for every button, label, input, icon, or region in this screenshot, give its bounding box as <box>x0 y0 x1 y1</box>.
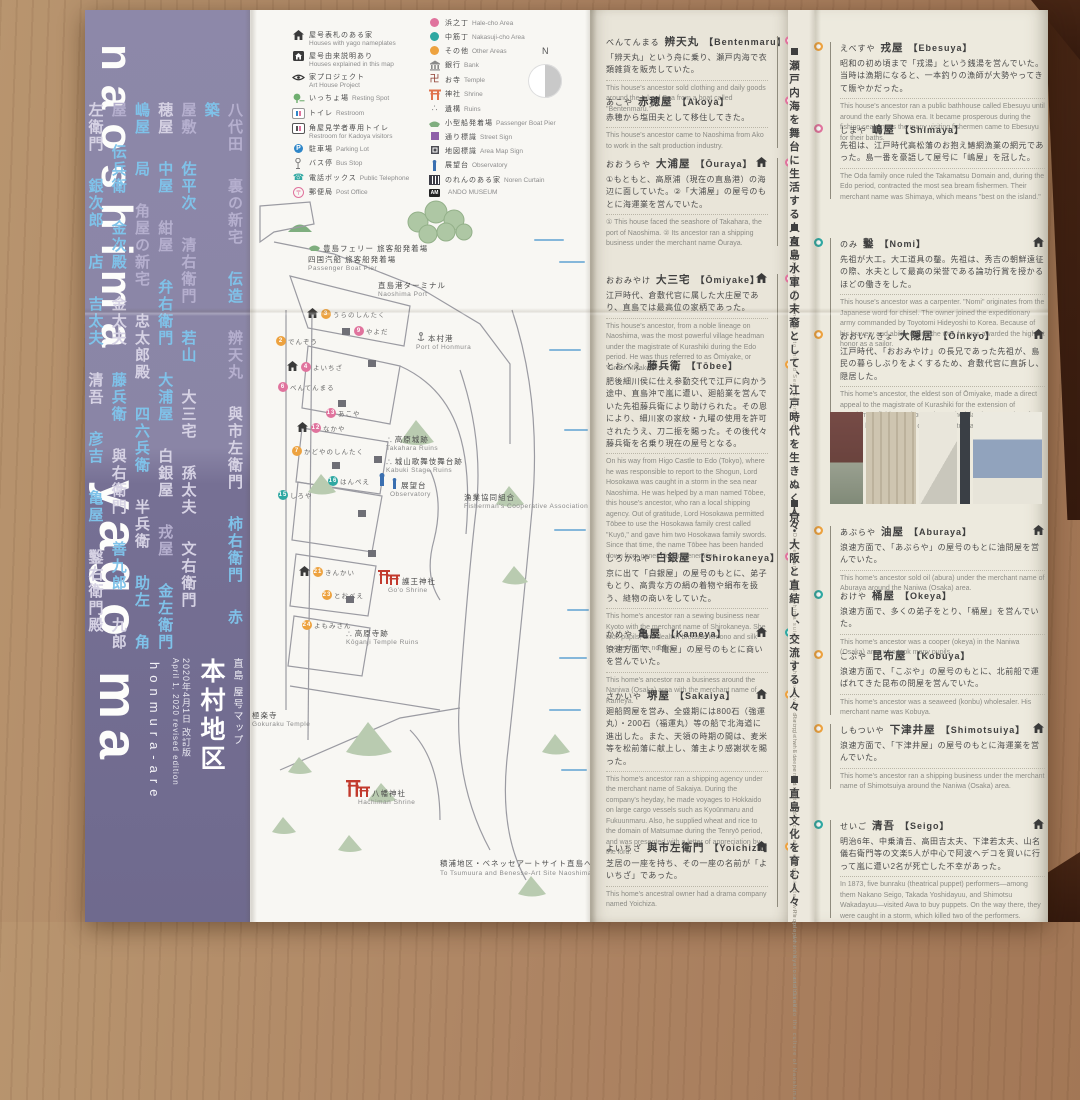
area-dot-teal-icon <box>430 32 439 41</box>
yago-name: 藤兵衛 <box>110 372 127 423</box>
legend-label-jp: 中筋丁 <box>445 34 469 41</box>
legend-label-en: Restroom <box>336 110 364 117</box>
yago-name: 柿右衛門 <box>226 516 243 584</box>
item-kanji: 亀屋 <box>638 628 661 640</box>
house-box-icon <box>292 51 305 62</box>
yago-name: 佐平次 <box>180 161 197 212</box>
legend-label-jp: お寺 <box>445 77 461 84</box>
house-icon <box>1032 723 1045 734</box>
item-rule <box>830 526 831 591</box>
item-kanji: 藤兵衛 <box>647 360 682 372</box>
yago-name: 金次殿 <box>110 220 127 271</box>
legend-label-en: Bank <box>464 62 479 69</box>
legend-row: 展望台Observatory <box>428 160 558 171</box>
yago-item-seigo: せいご清吾【Seigo】 明治6年、中乗清吾、高田吉太夫、下津若太夫、山名儀右衛… <box>830 818 1045 922</box>
parking-icon: P <box>294 144 303 153</box>
yago-name: 文右衛門 <box>180 541 197 609</box>
place-name-jp2: 四国汽船 旅客船発着場 <box>308 254 428 265</box>
yago-name-column: 屋 伝兵衛 金次殿 金太夫 藤兵衛 與右衛門 善九郎 九郎 <box>107 98 130 658</box>
place-name-jp: 豊島フェリー 旅客船発着場 <box>323 244 428 253</box>
group-header-4: 直島文化を育む人々People who have contributed to … <box>785 776 803 1100</box>
legend-label-jp: 浜之丁 <box>445 20 469 27</box>
item-description-jp: 昭和の初め頃まで「戎湯」という銭湯を営んでいた。当時は漁期になると、一本釣りの漁… <box>840 58 1045 95</box>
yago-name: 吉太夫 <box>87 296 104 347</box>
place-name-en: Takahara Ruins <box>386 445 438 452</box>
house-number-badge: 23 <box>322 590 332 600</box>
yago-item-aburaya: あぶらや油屋【Aburaya】 浪速方面で、「あぶらや」の屋号のもとに油問屋を営… <box>830 524 1045 595</box>
legend-row: 通り標識Street Sign <box>428 132 558 142</box>
yago-name: 築 <box>203 102 220 119</box>
yago-name: 角 <box>133 634 150 651</box>
yago-name: 鑿右衛門殿 <box>87 549 104 634</box>
legend-label-en: Houses explained in this map <box>309 61 394 68</box>
legend-label-jp: 角屋見学者専用トイレ <box>309 125 389 132</box>
item-kana: あぶらや <box>840 528 876 537</box>
item-description-jp: 京に出て「白銀屋」の屋号のもとに、弟子もとり、高貴な方の絹の着物や絹布を扱う、縫… <box>606 568 768 605</box>
item-kanji: 大隠居 <box>899 330 934 342</box>
item-description-jp: 江戸時代、「おおみやけ」の長兄であった先祖が、島民の暮らしぶりをよくするため、倉… <box>840 346 1045 383</box>
place-name-en: Kabuki Stage Ruins <box>386 467 463 474</box>
item-kana: おおみやけ <box>606 276 651 285</box>
item-rule <box>830 124 831 199</box>
legend-label-jp: 地図標識 <box>445 148 477 155</box>
item-kanji: 白銀屋 <box>656 552 691 564</box>
item-header: あこや赤穂屋【Akoya】 <box>606 94 768 109</box>
legend-label-en: Shrine <box>464 91 483 98</box>
yago-name-column: 穂屋 中屋 紺屋 弁右衛門 大浦屋 白銀屋 戎屋 金左衛門 <box>153 98 176 658</box>
legend-label-en: Temple <box>464 77 485 84</box>
noren-photo-strip <box>830 412 1042 504</box>
house-icon <box>292 30 305 41</box>
revision-date-en: April 1, 2020 revised edition <box>171 658 180 908</box>
item-description-en: In 1873, five bunraku (theatrical puppet… <box>840 876 1045 922</box>
yago-name: 九郎 <box>110 617 127 651</box>
legend-row: 〒 郵便局Post Office <box>292 187 422 198</box>
yago-item-shimotsuiya: しもついや下津井屋【Shimotsuiya】 浪速方面で、「下津井屋」の屋号のも… <box>830 722 1045 793</box>
item-kanji: 大三宅 <box>656 274 691 286</box>
legend-label-jp: バス停 <box>309 160 333 167</box>
legend-row: 中筋丁Nakasuji-cho Area <box>428 32 558 42</box>
place-name-jp: 展望台 <box>401 481 427 490</box>
item-kanji: 堺屋 <box>647 690 670 702</box>
legend-row: トイレRestroom <box>292 108 422 119</box>
map-house-label: 21きんかい <box>298 566 355 577</box>
legend-label-jp: のれんのある家 <box>445 177 501 184</box>
item-romaji: 【Ōuraya】 <box>696 159 753 169</box>
yago-name: 辨天丸 <box>226 330 243 381</box>
legend-label-jp: 屋号表札のある家 <box>309 32 373 39</box>
map-house-label: 7かどやのしんたく <box>292 446 364 456</box>
item-description-jp: 浪速方面で、多くの弟子をとり、「桶屋」を営んでいた。 <box>840 606 1045 631</box>
legend-label-jp: 遺構 <box>445 106 461 113</box>
legend-row: のれんのある家Noren Curtain <box>428 175 558 185</box>
item-rule <box>777 96 778 148</box>
compass-north-label: N <box>542 46 549 56</box>
anchor-icon <box>416 332 426 342</box>
item-romaji: 【Ōmiyake】 <box>696 275 761 285</box>
item-marker-teal <box>814 590 823 599</box>
observatory-icon <box>390 478 399 489</box>
legend-label-en: Ruins <box>464 106 481 113</box>
item-description-jp: 先祖が大工。大工道具の鑿。先祖は、秀吉の朝鮮遠征の際、水夫として最高の栄誉である… <box>840 254 1045 291</box>
legend-label-jp: その他 <box>445 48 469 55</box>
legend-label-en: Hale-cho Area <box>472 20 513 27</box>
place-name-jp: 本村港 <box>428 334 454 343</box>
item-romaji: 【Okeya】 <box>900 591 952 601</box>
legend-row: いっちょ場Resting Spot <box>292 93 422 104</box>
group-title-jp: 京・大阪と直結し、交流する人々 <box>788 500 800 715</box>
yago-name: 屋敷 <box>180 102 197 136</box>
yago-name: 店 <box>87 254 104 271</box>
yago-name: 助左 <box>133 575 150 609</box>
post-office-icon: 〒 <box>293 187 304 198</box>
map-house-label: 16はんぺえ <box>328 476 370 486</box>
section-square-icon <box>791 776 798 783</box>
item-description-en: The Oda family once ruled the Takamatsu … <box>840 168 1045 204</box>
item-marker-orange <box>814 650 823 659</box>
area-dot-pink-icon <box>430 18 439 27</box>
boat-icon <box>308 242 321 252</box>
yago-name: 八代田 <box>226 102 243 153</box>
item-romaji: 【Akoya】 <box>678 97 730 107</box>
yago-name: 清右衛門 <box>180 237 197 305</box>
map-house-label: 13あこや <box>326 408 361 418</box>
noren-photo-2 <box>866 412 916 504</box>
torii-icon <box>358 786 370 797</box>
yago-item-tōbee: とおべえ藤兵衛【Tōbee】 肥後細川侯に仕え参勤交代で江戸に向かう途中、直島沖… <box>606 358 778 562</box>
item-header: しろかねや白銀屋【Shirokaneya】 <box>606 550 768 565</box>
house-number-badge: 3 <box>321 309 331 319</box>
legend-row: その他Other Areas <box>428 46 558 56</box>
ruins-icon: ∴ <box>432 104 438 113</box>
item-kana: こぶや <box>840 652 867 661</box>
item-header: おおみやけ大三宅【Ōmiyake】 <box>606 272 768 287</box>
yago-name-column: 八代田 裏の新宅 伝造 辨天丸 與市左衛門 柿右衛門 赤 築 <box>200 98 247 658</box>
legend-label-en: Parking Lot <box>336 146 369 153</box>
yago-name: 彦吉 <box>87 431 104 465</box>
map-house-label: 9やよだ <box>354 326 389 336</box>
yago-name: 赤 <box>226 609 243 626</box>
map-house-label: 6べんてんまる <box>278 382 335 392</box>
legend-label-jp: トイレ <box>309 110 333 117</box>
house-name: なかや <box>323 423 346 433</box>
house-icon <box>1032 819 1045 830</box>
house-icon <box>296 422 309 433</box>
yago-name: 伝造 <box>226 271 243 305</box>
item-description-jp: 浪速方面で、「あぶらや」の屋号のもとに油問屋を営んでいた。 <box>840 542 1045 567</box>
legend-label-en: Area Map Sign <box>480 148 523 155</box>
folded-map-paper: naoshima yago ma 八代田 裏の新宅 伝造 辨天丸 與市左衛門 柿… <box>85 10 1048 922</box>
house-icon <box>298 566 311 577</box>
item-header: よいちざ與市左衛門【Yoichiza】 <box>606 840 768 855</box>
legend-label-en: Houses with yago nameplates <box>309 40 396 47</box>
item-kana: せいご <box>840 822 867 831</box>
map-house-label: 23とおべえ <box>322 590 364 600</box>
legend-label-jp: 駐車場 <box>309 146 333 153</box>
house-number-badge: 4 <box>301 362 311 372</box>
map-place-label: 極楽寺Gokuraku Temple <box>252 710 310 728</box>
place-name-en: Kōganji Temple Ruins <box>346 639 419 646</box>
item-description-en: This home's ancestral owner had a drama … <box>606 886 768 911</box>
group-title-en: People who have contributed to the cultu… <box>791 910 797 1100</box>
legend-label-en: Other Areas <box>472 48 507 55</box>
item-header: かめや亀屋【Kameya】 <box>606 626 768 641</box>
item-header: さかいや堺屋【Sakaiya】 <box>606 688 768 703</box>
noren-icon <box>429 175 440 185</box>
legend-label-en: Art House Project <box>309 82 365 89</box>
map-house-label: 3うらのしんたく <box>306 308 386 319</box>
item-kana: のみ <box>840 240 858 249</box>
group-title-jp: 瀬戸内海を舞台に生活する人々 <box>788 48 800 249</box>
place-name-en: Gokuraku Temple <box>252 721 310 728</box>
place-name-en: Fisherman's Cooperative Association <box>464 503 588 510</box>
item-kanji: 辨天丸 <box>665 36 700 48</box>
boat-icon <box>428 118 441 128</box>
item-rule <box>777 690 778 855</box>
house-name: はんぺえ <box>340 476 370 486</box>
map-place-label: ∴高原城跡Takahara Ruins <box>386 434 438 452</box>
legend-label-en: Observatory <box>472 162 507 169</box>
house-name: しろや <box>290 490 313 500</box>
legend-label-jp: いっちょ場 <box>309 95 349 102</box>
bus-stop-icon <box>294 158 303 169</box>
yago-name: 金太夫 <box>110 296 127 347</box>
map-place-label: ∴高原寺跡Kōganji Temple Ruins <box>346 628 419 646</box>
item-marker-teal <box>814 238 823 247</box>
yago-name: 若山 <box>180 330 197 364</box>
yago-name: 角屋の新宅 <box>133 203 150 288</box>
house-name: かどやのしんたく <box>304 446 364 456</box>
item-header: しまや嶋屋【Shimaya】 <box>840 122 1045 137</box>
house-number-badge: 24 <box>302 620 312 630</box>
yago-name: 戎屋 <box>156 524 173 558</box>
house-name: とおべえ <box>334 590 364 600</box>
temple-icon: 卍 <box>430 75 440 85</box>
legend-label-en: Public Telephone <box>360 175 409 182</box>
item-kana: かめや <box>606 630 633 639</box>
yago-name: 善九郎 <box>110 541 127 592</box>
map-place-label: 護王神社Go'o Shrine <box>388 574 436 594</box>
yago-name: 孫太夫 <box>180 465 197 516</box>
house-number-badge: 2 <box>276 336 286 346</box>
yago-name: 四六兵衛 <box>133 406 150 474</box>
legend-label-jp: 通り標識 <box>445 134 477 141</box>
house-number-badge: 15 <box>278 490 288 500</box>
map-place-label: 積浦地区・ベネッセアートサイト直島へTo Tsumuura and Beness… <box>440 858 600 877</box>
item-rule <box>830 590 831 655</box>
map-legend: 屋号表札のある家Houses with yago nameplates 屋号由来… <box>250 16 590 206</box>
yago-name: 大三宅 <box>180 389 197 440</box>
legend-label-jp: 小型船発着場 <box>445 120 493 127</box>
place-name-en: Port of Honmura <box>416 344 471 351</box>
yago-name: 金左衛門 <box>156 583 173 651</box>
group-title-jp: 直島文化を育む人々 <box>788 776 800 910</box>
yago-item-ōuraya: おおうらや大浦屋【Ōuraya】 ①もともと、高原浦（現在の直島港）の海辺に面し… <box>606 156 778 250</box>
yago-name-column: 嶋屋 局 角屋の新宅 忠太郎殿 四六兵衛 半兵衛 助左 角 <box>130 98 153 658</box>
item-description-jp: 江戸時代、倉敷代官に属した大庄屋であり、直島では最高位の家柄であった。 <box>606 290 768 315</box>
legend-row: 家プロジェクトArt House Project <box>292 72 422 89</box>
legend-label-jp: 神社 <box>445 91 461 98</box>
house-icon <box>755 157 768 168</box>
legend-row: 屋号由来説明ありHouses explained in this map <box>292 51 422 68</box>
yago-item-sakaiya: さかいや堺屋【Sakaiya】 廻船問屋を営み、全盛期には800石（強運丸）・2… <box>606 688 778 859</box>
item-kanji: 昆布屋 <box>872 650 907 662</box>
yago-name: 穂屋 <box>156 102 173 136</box>
house-name: あこや <box>338 408 361 418</box>
observatory-icon <box>430 160 439 171</box>
item-marker-orange <box>814 724 823 733</box>
house-name: きんかい <box>325 567 355 577</box>
yago-name: 左衛門 <box>87 102 104 153</box>
item-kana: おおいんきょ <box>840 332 894 341</box>
revision-date-jp: 2020年4月1日 改訂版 <box>180 658 193 908</box>
map-sign-icon <box>431 146 439 154</box>
yago-name: 銀次郎 <box>87 178 104 229</box>
place-name-en: Go'o Shrine <box>388 587 436 594</box>
yago-name: 與市左衛門 <box>226 406 243 491</box>
item-romaji: 【Ebesuya】 <box>908 43 972 53</box>
item-kanji: 清吾 <box>872 820 895 832</box>
item-romaji: 【Sakaiya】 <box>675 691 736 701</box>
item-kanji: 嶋屋 <box>872 124 895 136</box>
item-romaji: 【Bentenmaru】 <box>704 37 787 47</box>
item-header: のみ鑿【Nomi】 <box>840 236 1045 251</box>
item-header: べんてんまる辨天丸【Bentenmaru】 <box>606 34 768 49</box>
item-description-jp: 「辨天丸」という舟に乗り、瀬戸内海で衣類雑貨を販売していた。 <box>606 52 768 77</box>
house-name: よもみさん <box>314 620 352 630</box>
item-rule <box>830 650 831 715</box>
section-square-icon <box>791 224 798 231</box>
house-number-badge: 6 <box>278 382 288 392</box>
item-description-jp: 浪速方面で、「こぶや」の屋号のもとに、北前船で運ばれてきた昆布の問屋を営んでいた… <box>840 666 1045 691</box>
legend-label-en: Bus Stop <box>336 160 362 167</box>
place-name-jp: 八幡神社 <box>372 789 406 798</box>
bank-icon <box>429 60 441 71</box>
item-kanji: 與市左衛門 <box>647 842 705 854</box>
place-name-en: Observatory <box>390 491 431 498</box>
house-name: でんぞう <box>288 336 318 346</box>
item-description-en: This home's ancestor ran a shipping busi… <box>840 768 1045 793</box>
item-description-jp: 肥後細川侯に仕え参勤交代で江戸に向かう途中、直島沖で嵐に遭い、廻船業を営んでいた… <box>606 376 768 450</box>
item-header: とおべえ藤兵衛【Tōbee】 <box>606 358 768 373</box>
item-romaji: 【Aburaya】 <box>909 527 972 537</box>
map-house-label: 15しろや <box>278 490 313 500</box>
item-description-jp: 芝居の一座を持ち、その一座の名前が「よいちざ」であった。 <box>606 858 768 883</box>
map-house-label: 2でんぞう <box>276 336 318 346</box>
map-panel: 屋号表札のある家Houses with yago nameplates 屋号由来… <box>250 10 590 922</box>
place-name-jp: 城山歌舞伎舞台跡 <box>395 457 463 466</box>
place-name-jp: 極楽寺 <box>252 711 278 720</box>
legend-row: 小型船発着場Passenger Boat Pier <box>428 118 558 128</box>
legend-column-left: 屋号表札のある家Houses with yago nameplates 屋号由来… <box>292 30 422 202</box>
item-romaji: 【Kameya】 <box>666 629 727 639</box>
yago-item-akoya: あこや赤穂屋【Akoya】 赤穂から塩田夫として移住してきた。 This hou… <box>606 94 778 152</box>
item-description-jp: 明治6年、中乗清吾、高田吉太夫、下津若太夫、山名儀右衛門等の文楽5人が中心で阿波… <box>840 836 1045 873</box>
compass-icon <box>528 64 562 98</box>
place-name-jp: 高原城跡 <box>395 435 429 444</box>
legend-label-en: Noren Curtain <box>504 177 544 184</box>
legend-label-en: Street Sign <box>480 134 512 141</box>
place-name-jp: 直島港ターミナル <box>378 281 446 290</box>
item-rule <box>777 842 778 907</box>
item-description-en: This house's ancestor came to Naoshima f… <box>606 127 768 152</box>
map-place-label: 豊島フェリー 旅客船発着場四国汽船 旅客船発着場Passenger Boat P… <box>308 242 428 272</box>
spine-subtitle-honmura: honmura-are <box>147 662 162 802</box>
place-name-en: To Tsumuura and Benesse-Art Site Naoshim… <box>440 869 600 877</box>
yago-name: 嶋屋 <box>133 102 150 136</box>
item-kana: しろかねや <box>606 554 651 563</box>
item-kanji: 桶屋 <box>872 590 895 602</box>
item-description-jp: 浪速方面で、「亀屋」の屋号のもとに商いを営んでいた。 <box>606 644 768 669</box>
item-description-jp: 廻船問屋を営み、全盛期には800石（強運丸）・200石（福運丸）等の船で北海道に… <box>606 706 768 768</box>
map-place-label: 本村港Port of Honmura <box>416 332 471 351</box>
item-marker-orange <box>814 526 823 535</box>
house-name: よいちざ <box>313 362 343 372</box>
item-kana: しもついや <box>840 726 885 735</box>
yago-name: 忠太郎殿 <box>133 313 150 381</box>
legend-label-jp: 銀行 <box>445 62 461 69</box>
yago-name: 亀屋 <box>87 490 104 524</box>
house-number-badge: 13 <box>326 408 336 418</box>
legend-label-en: Post Office <box>336 189 368 196</box>
legend-row: AM ANDO MUSEUM <box>428 189 558 199</box>
ruins-icon: ∴ <box>386 457 393 467</box>
house-number-badge: 21 <box>313 567 323 577</box>
item-romaji: 【Nomi】 <box>880 239 927 249</box>
item-kanji: 油屋 <box>881 526 904 538</box>
legend-label-en: Passenger Boat Pier <box>496 120 556 127</box>
item-kanji: 戎屋 <box>880 42 903 54</box>
house-number-badge: 7 <box>292 446 302 456</box>
house-number-badge: 16 <box>328 476 338 486</box>
legend-row: ∴ 遺構Ruins <box>428 104 558 114</box>
yago-name: 弁右衛門 <box>156 279 173 347</box>
restroom-icon <box>292 108 305 119</box>
map-place-label: 展望台Observatory <box>390 478 431 498</box>
house-icon <box>755 689 768 700</box>
yago-name: 屋 <box>110 102 127 119</box>
item-marker-orange <box>814 330 823 339</box>
yago-name: 伝兵衛 <box>110 144 127 195</box>
item-rule <box>777 158 778 246</box>
item-description-en: This home's ancestor was a seaweed (konb… <box>840 694 1045 719</box>
item-kana: さかいや <box>606 692 642 701</box>
spine-title-block: 直島 屋号マップ 本村地区 2020年4月1日 改訂版 April 1, 202… <box>171 658 244 908</box>
item-romaji: 【Seigo】 <box>900 821 950 831</box>
item-kanji: 鑿 <box>863 238 875 250</box>
legend-label-jp: 電話ボックス <box>309 175 357 182</box>
item-kanji: 下津井屋 <box>890 724 936 736</box>
yago-item-shimaya: しまや嶋屋【Shimaya】 先祖は、江戸時代高松藩のお抱え鰆網漁業の網元であっ… <box>830 122 1045 203</box>
house-icon <box>1032 329 1045 340</box>
legend-label-jp: 郵便局 <box>309 189 333 196</box>
house-icon <box>286 361 299 372</box>
place-name-en: Passenger Boat Pier <box>308 265 428 272</box>
item-kana: おおうらや <box>606 160 651 169</box>
shrine-icon <box>429 89 441 100</box>
yago-name: 半兵衛 <box>133 499 150 550</box>
item-marker-pink <box>814 124 823 133</box>
place-name-en: Naoshima Port <box>378 291 446 298</box>
item-marker-teal <box>814 820 823 829</box>
noren-photo-1 <box>830 412 863 504</box>
resting-spot-icon <box>292 93 305 104</box>
item-description-jp: 先祖は、江戸時代高松藩のお抱え鰆網漁業の網元であった。島一番を豪語して屋号に「嶋… <box>840 140 1045 165</box>
map-place-label: ∴城山歌舞伎舞台跡Kabuki Stage Ruins <box>386 456 463 474</box>
item-romaji: 【Shirokaneya】 <box>696 553 781 563</box>
house-number-badge: 12 <box>311 423 321 433</box>
legend-label-en: Resting Spot <box>352 95 389 102</box>
